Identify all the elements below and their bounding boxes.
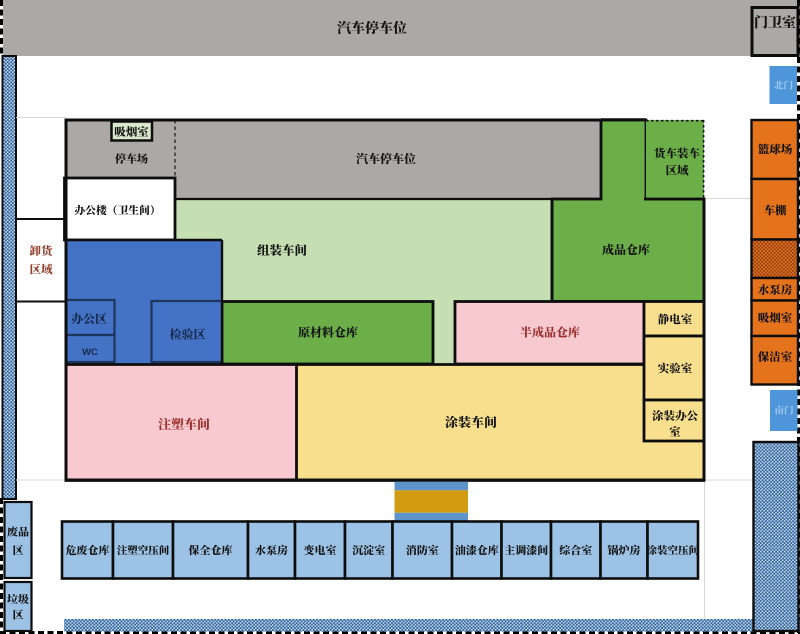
svg-text:WC: WC (82, 347, 98, 358)
